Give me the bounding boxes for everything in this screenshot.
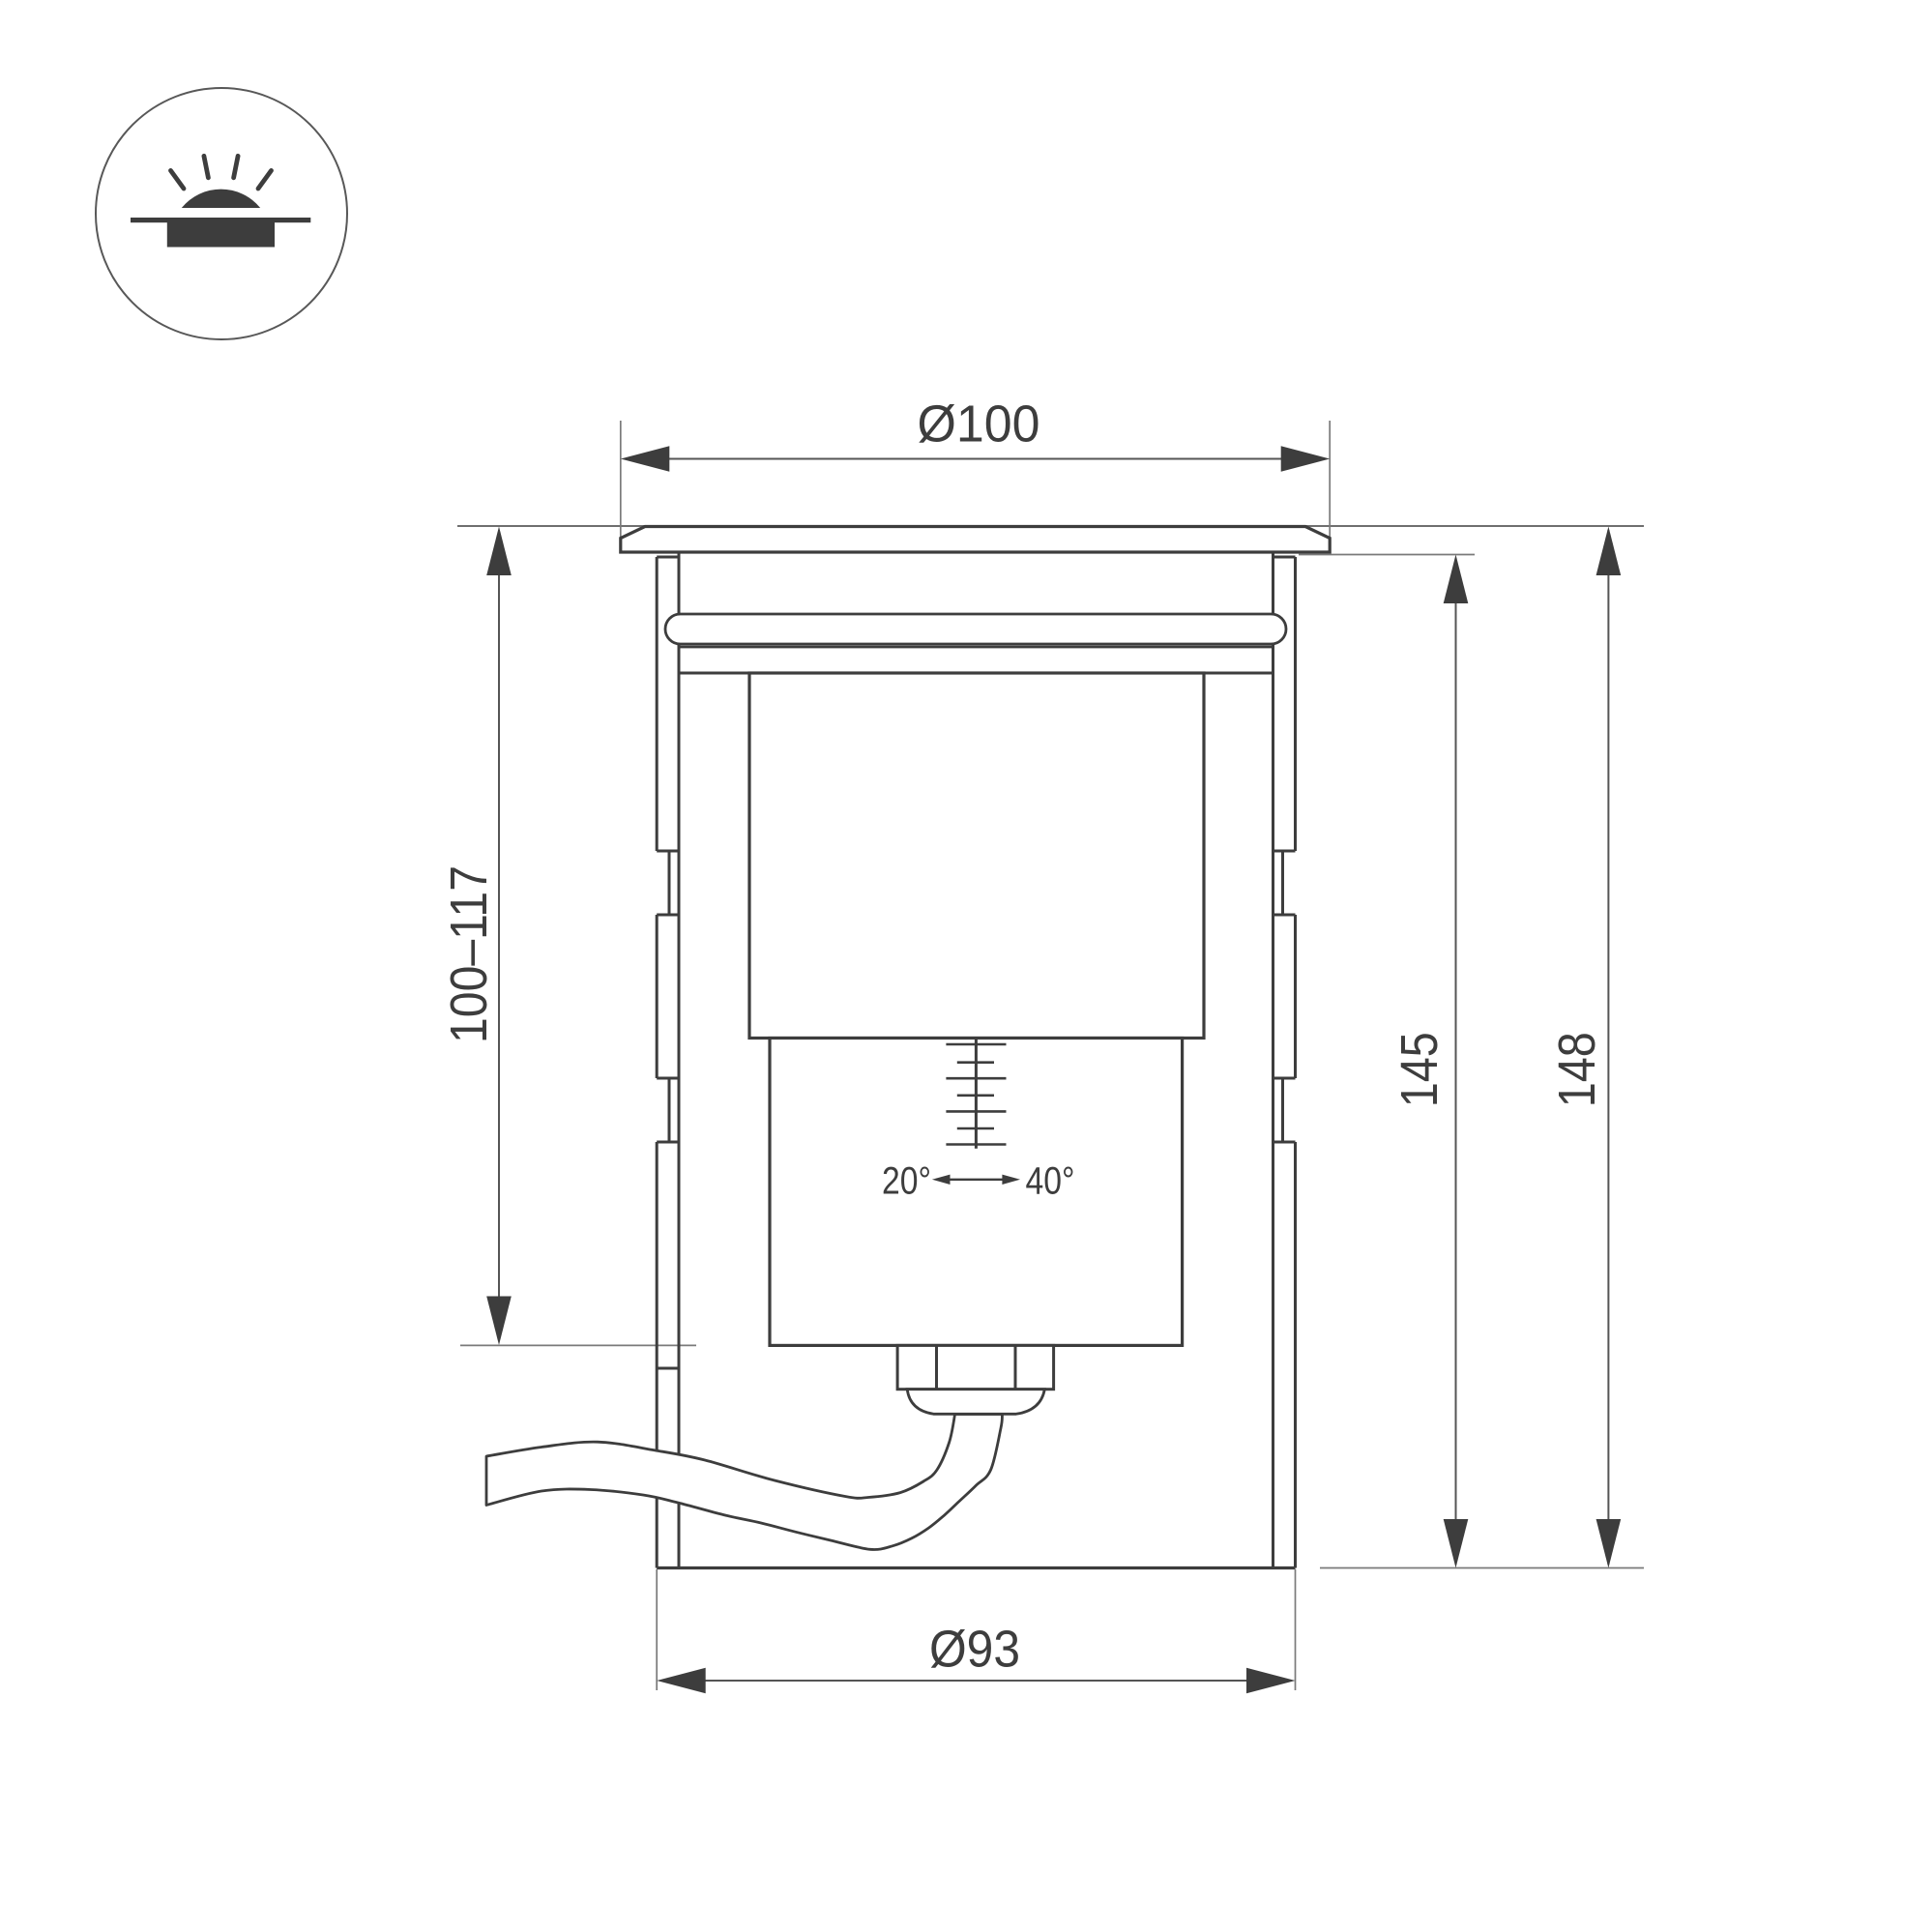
- svg-text:148: 148: [1549, 1032, 1606, 1107]
- svg-text:145: 145: [1391, 1032, 1449, 1107]
- svg-text:100–117: 100–117: [441, 865, 498, 1043]
- svg-text:40°: 40°: [1026, 1159, 1075, 1202]
- svg-text:20°: 20°: [882, 1159, 931, 1202]
- svg-text:Ø100: Ø100: [918, 395, 1040, 453]
- svg-text:Ø93: Ø93: [929, 1621, 1020, 1678]
